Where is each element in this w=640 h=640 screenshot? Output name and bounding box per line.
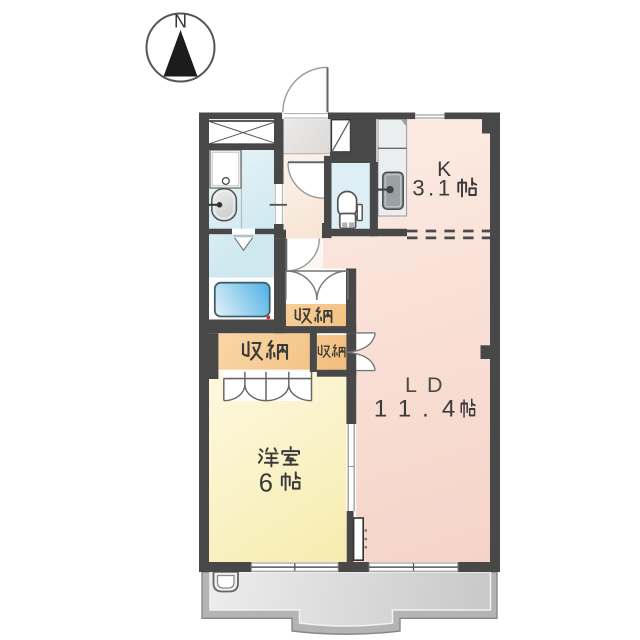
svg-text:.: . (422, 396, 429, 423)
svg-text:.: . (428, 176, 434, 201)
svg-text:4: 4 (442, 396, 455, 423)
svg-text:L: L (405, 373, 417, 397)
svg-text:1: 1 (438, 176, 450, 201)
svg-text:1: 1 (398, 396, 411, 423)
svg-text:D: D (427, 373, 443, 397)
svg-text:6: 6 (259, 469, 273, 497)
svg-text:3: 3 (412, 176, 424, 201)
svg-text:1: 1 (374, 396, 387, 423)
svg-text:N: N (174, 12, 187, 32)
